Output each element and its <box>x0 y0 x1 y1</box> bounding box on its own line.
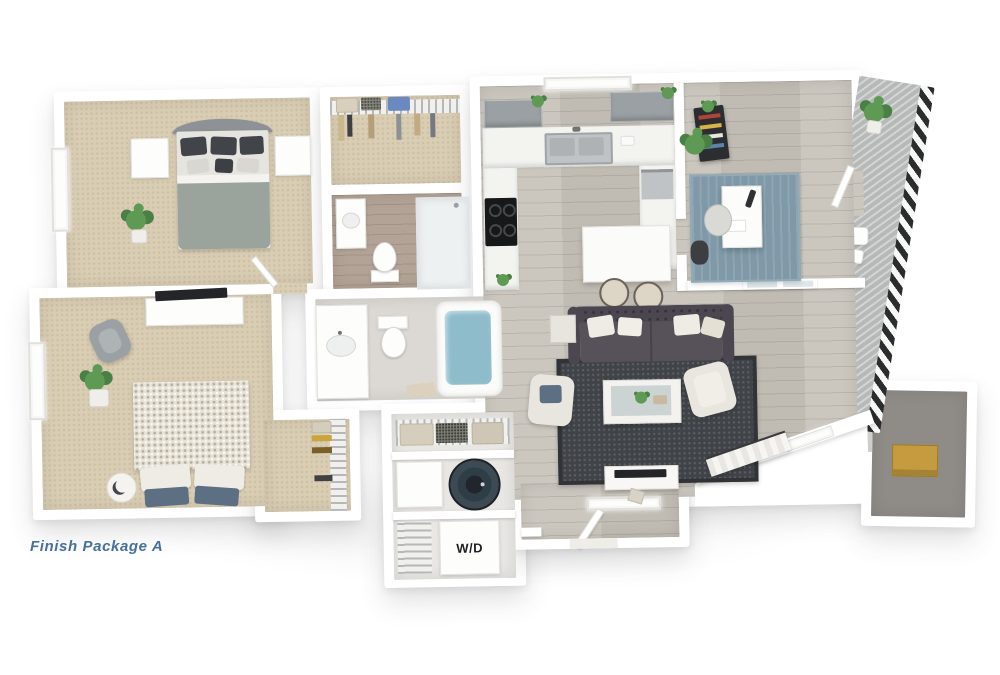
laundry-basket-2 <box>436 423 468 444</box>
burner-icon <box>489 224 502 237</box>
closet-2-clothes-1 <box>312 435 332 441</box>
bedroom-2-window <box>28 342 46 420</box>
sofa-pillow-2 <box>617 317 642 337</box>
burner-icon <box>503 204 516 217</box>
balcony-plant-pot <box>866 120 883 135</box>
bedroom-1-window <box>51 148 70 232</box>
hanging-clothes-2 <box>347 115 352 137</box>
crescent-icon <box>115 479 129 493</box>
closet-1-basket-1 <box>336 97 358 112</box>
laundry-basket-1 <box>400 423 434 446</box>
wall-stub <box>521 527 541 536</box>
cooktop <box>485 198 518 247</box>
bedroom-1-plant-pot <box>131 229 147 243</box>
washer-dryer: W/D <box>439 520 500 575</box>
office-side-chair <box>690 240 708 264</box>
bed-1-pillow-dark-1 <box>180 136 207 156</box>
kitchen-window <box>543 76 631 92</box>
bed-1-pillow-light-2 <box>237 158 260 174</box>
bed-1-blanket <box>177 182 270 250</box>
counter-items <box>621 136 635 146</box>
sink-basin-left <box>550 138 575 156</box>
bedroom-1-door-opening <box>273 283 307 294</box>
hanging-clothes-4 <box>396 114 401 140</box>
nightstand-left <box>130 138 169 179</box>
finish-package-caption: Finish Package A <box>30 538 163 555</box>
toilet-1 <box>372 242 397 272</box>
storage-cube <box>396 461 443 508</box>
dishwasher <box>641 169 674 200</box>
bed-1-pillow-dark-3 <box>239 136 264 155</box>
laundry-shelf-2 <box>397 521 432 574</box>
storage-box <box>892 444 939 477</box>
books-row <box>698 113 720 120</box>
bathroom-2-faucet-icon <box>338 331 342 335</box>
kitchen-faucet-icon <box>572 127 580 132</box>
sofa-pillow-1 <box>586 314 615 338</box>
closet-1-blue-bin <box>388 97 410 111</box>
bed-2-pillow-blue-1 <box>144 486 189 507</box>
bed-1-pillow-small <box>215 158 234 173</box>
apartment-floorplan: W/D <box>24 68 983 605</box>
closet-2-clothes-3 <box>314 475 332 481</box>
toilet-2 <box>381 327 407 358</box>
bathtub-water <box>445 310 492 385</box>
nightstand-right <box>274 135 311 176</box>
bed-1-pillow-dark-2 <box>210 136 237 155</box>
coffee-table-tray <box>653 395 667 404</box>
kitchen-office-wall-2 <box>677 255 688 291</box>
armchair-pillow <box>539 385 561 403</box>
burner-icon <box>503 224 516 237</box>
sofa-pillow-3 <box>673 314 701 336</box>
closet-2-shelf <box>329 419 347 511</box>
double-sink <box>544 132 613 165</box>
books-row <box>699 123 721 130</box>
bed-2-pillow-blue-2 <box>194 486 239 507</box>
armchair-left <box>527 373 575 427</box>
closet-1-basket-2 <box>361 97 381 110</box>
french-door-glass-right <box>783 281 813 288</box>
floorplan-scene: W/D Finish Package A <box>0 0 1000 675</box>
laundry-basket-3 <box>472 422 504 445</box>
balcony-door-opening <box>853 170 864 216</box>
books-row <box>701 133 723 140</box>
shower <box>416 197 472 290</box>
hanging-clothes-6 <box>430 113 435 137</box>
hanging-clothes-5 <box>414 113 420 135</box>
accent-chair-seat <box>96 326 124 356</box>
books-row <box>702 143 724 150</box>
closet-2-basket <box>311 421 331 433</box>
burner-icon <box>489 204 502 217</box>
french-door-glass-left <box>747 281 777 288</box>
closet-2-clothes-2 <box>312 447 332 453</box>
hanging-clothes-1 <box>338 115 344 141</box>
bedroom-2-planter <box>89 389 109 407</box>
dining-table <box>582 225 671 283</box>
armchair-cushion <box>692 370 727 408</box>
bed-2-blanket <box>133 380 251 470</box>
sink-basin-right <box>579 137 604 155</box>
sofa-arm-right <box>721 304 734 362</box>
hanging-clothes-3 <box>368 114 374 138</box>
entry-door-opening <box>570 538 618 549</box>
shower-head-icon <box>454 203 459 208</box>
tv <box>614 469 666 478</box>
drum-highlight <box>481 482 485 486</box>
bed-1-pillow-light-1 <box>186 158 210 175</box>
side-table <box>550 315 576 343</box>
